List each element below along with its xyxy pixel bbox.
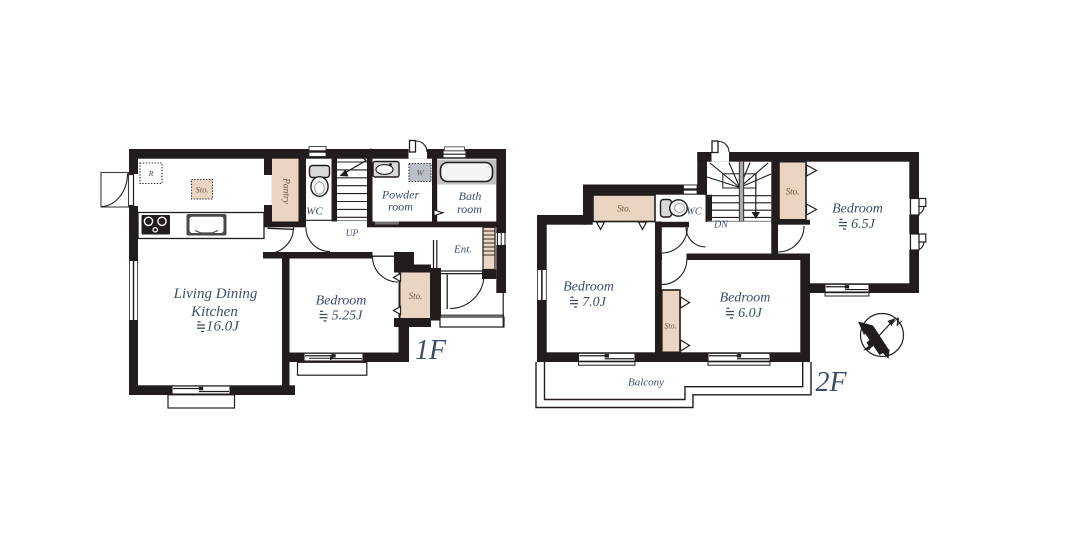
svg-text:6.5J: 6.5J [851,217,876,232]
svg-text:2F: 2F [815,367,847,398]
svg-text:UP: UP [346,229,359,239]
svg-text:Sto.: Sto. [786,187,800,197]
svg-text:room: room [388,200,413,214]
svg-text:R: R [148,169,154,178]
svg-text:Pantry: Pantry [281,177,291,205]
svg-text:1F: 1F [415,335,447,366]
svg-text:DN: DN [713,220,729,231]
svg-text:Ent.: Ent. [453,244,472,256]
svg-text:Sto.: Sto. [617,204,631,214]
svg-text:WC: WC [687,207,702,218]
svg-text:WC: WC [306,206,323,218]
svg-text:7.0J: 7.0J [582,295,607,310]
svg-text:W: W [416,168,424,178]
svg-text:Sto.: Sto. [409,291,423,301]
svg-text:Balcony: Balcony [628,377,664,389]
svg-text:Bedroom: Bedroom [832,202,883,217]
svg-text:Sto.: Sto. [664,322,676,331]
svg-text:Bedroom: Bedroom [720,291,771,306]
svg-text:5.25J: 5.25J [332,309,364,324]
svg-text:Bath: Bath [459,189,482,203]
svg-text:Bedroom: Bedroom [563,280,614,295]
svg-text:room: room [457,202,482,216]
svg-text:Sto.: Sto. [196,185,209,195]
svg-text:16.0J: 16.0J [206,319,240,335]
svg-text:Living Dining: Living Dining [173,286,258,302]
svg-text:6.0J: 6.0J [738,306,763,321]
svg-text:Bedroom: Bedroom [316,294,367,309]
